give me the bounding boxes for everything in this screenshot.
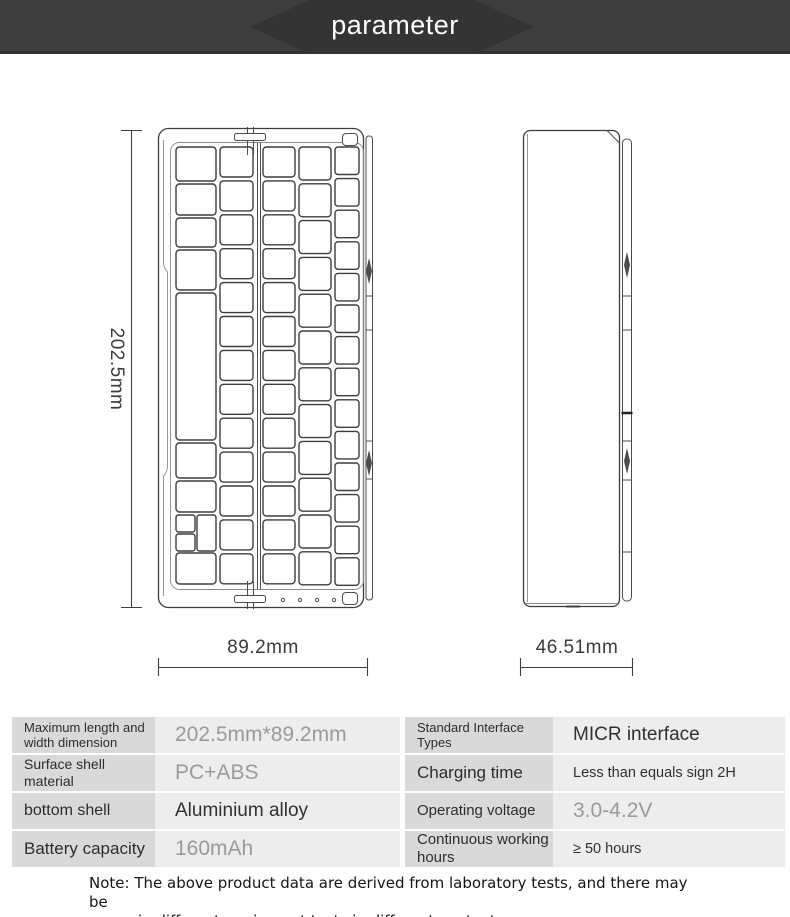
- footnote: Note: The above product data are derived…: [89, 874, 709, 917]
- side-width-dimension-label: 46.51mm: [536, 637, 619, 658]
- width-dimension-label: 89.2mm: [227, 637, 299, 658]
- spec-label-charging-time: Charging time: [405, 755, 553, 791]
- spec-value-surface-material: PC+ABS: [155, 755, 400, 791]
- spec-value-charging-time: Less than equals sign 2H: [553, 755, 785, 791]
- spec-value-battery-capacity: 160mAh: [155, 831, 400, 867]
- height-dimension-label: 202.5mm: [106, 328, 127, 411]
- spec-value-interface: MICR interface: [553, 717, 785, 753]
- spec-label-bottom-shell: bottom shell: [12, 793, 155, 829]
- spec-label-working-hours: Continuous working hours: [405, 831, 553, 867]
- keyboard-side-view: [524, 131, 633, 607]
- hinge-strip-side: [622, 139, 633, 601]
- spec-value-working-hours: ≥ 50 hours: [553, 831, 785, 867]
- spec-value-max-dimension: 202.5mm*89.2mm: [155, 717, 400, 753]
- dimension-width-side: 46.51mm: [520, 637, 633, 676]
- spec-label-surface-material: Surface shell material: [12, 755, 155, 791]
- spec-table: Maximum length and width dimension 202.5…: [12, 717, 785, 867]
- spec-value-operating-voltage: 3.0-4.2V: [553, 793, 785, 829]
- parameter-page: parameter: [0, 0, 790, 917]
- spec-label-max-dimension: Maximum length and width dimension: [12, 717, 155, 753]
- corner-button-top: [343, 134, 358, 146]
- dimension-width-front: 89.2mm: [158, 637, 368, 676]
- spec-label-operating-voltage: Operating voltage: [405, 793, 553, 829]
- hinge-strip-front: [366, 136, 373, 600]
- spec-label-interface: Standard Interface Types: [405, 717, 553, 753]
- keyboard-front-view: [159, 127, 373, 609]
- spec-value-bottom-shell: Aluminium alloy: [155, 793, 400, 829]
- dimension-height: 202.5mm: [106, 130, 142, 608]
- corner-button-bottom: [343, 593, 358, 605]
- spec-label-battery-capacity: Battery capacity: [12, 831, 155, 867]
- technical-drawing: 202.5mm 89.2mm 46.51mm: [0, 0, 790, 700]
